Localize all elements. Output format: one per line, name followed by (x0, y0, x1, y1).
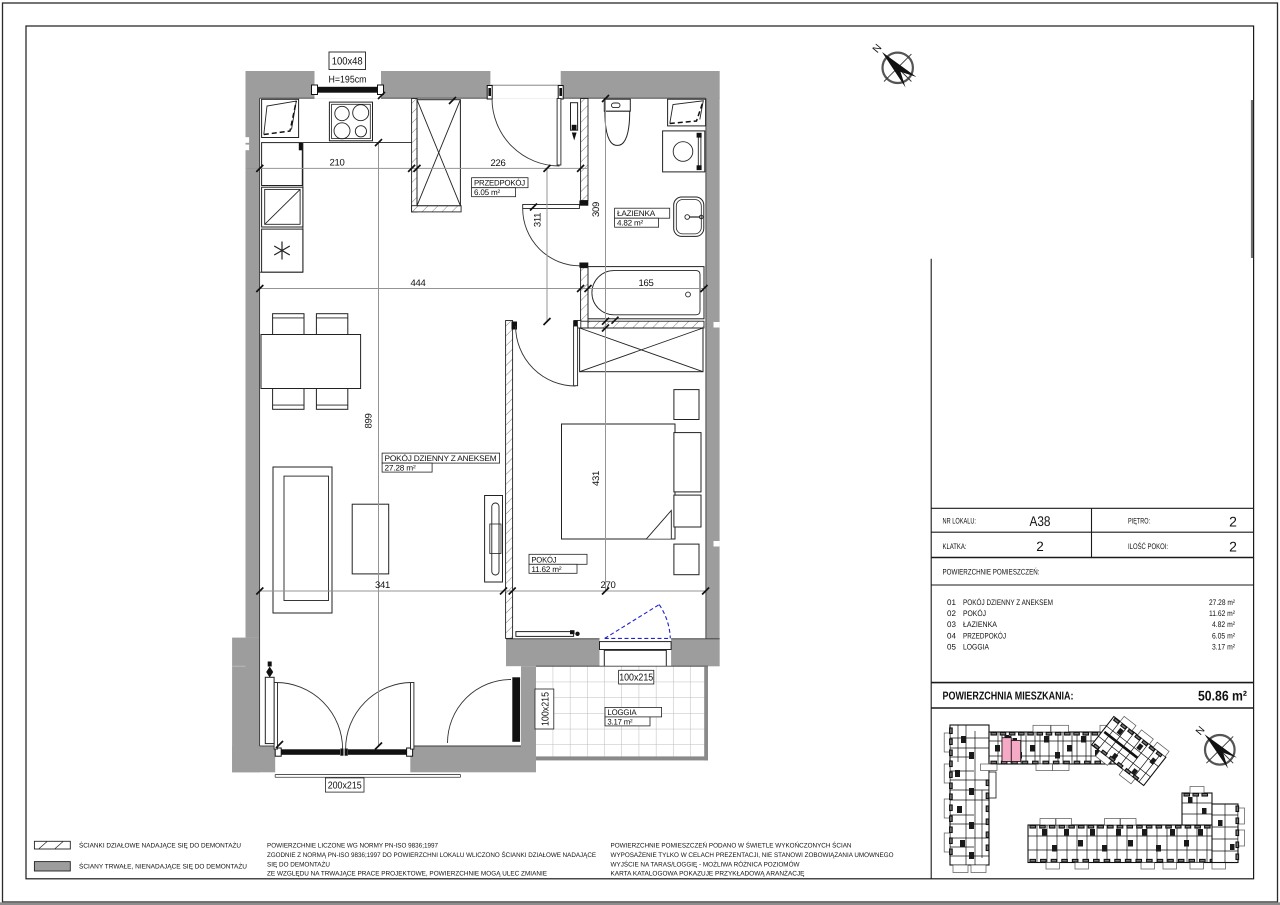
svg-text:WYJŚCIE NA TARAS/LOGGIĘ - MOŻL: WYJŚCIE NA TARAS/LOGGIĘ - MOŻLIWA RÓŻNIC… (611, 860, 801, 868)
svg-text:27.28 m²: 27.28 m² (1209, 598, 1235, 607)
svg-text:A38: A38 (1030, 513, 1051, 529)
svg-text:100x215: 100x215 (619, 673, 653, 684)
svg-text:6.05 m²: 6.05 m² (1212, 631, 1235, 640)
svg-text:431: 431 (591, 471, 602, 486)
svg-text:270: 270 (601, 580, 616, 591)
svg-text:27.28 m²: 27.28 m² (385, 464, 417, 473)
svg-text:ILOŚĆ POKOI:: ILOŚĆ POKOI: (1128, 541, 1168, 551)
svg-text:4.82 m²: 4.82 m² (617, 219, 644, 228)
svg-text:01: 01 (947, 598, 956, 607)
svg-text:2: 2 (1229, 539, 1237, 555)
svg-text:03: 03 (947, 620, 956, 629)
svg-text:ŚCIANY TRWAŁE, NIENADAJĄCE SIĘ: ŚCIANY TRWAŁE, NIENADAJĄCE SIĘ DO DEMONT… (79, 863, 247, 871)
svg-text:309: 309 (591, 202, 602, 217)
svg-text:899: 899 (364, 414, 375, 429)
svg-text:341: 341 (375, 580, 390, 591)
svg-text:ŚCIANKI DZIAŁOWE NADAJĄCE SIĘ: ŚCIANKI DZIAŁOWE NADAJĄCE SIĘ DO DEMONTA… (79, 842, 241, 850)
svg-text:3.17 m²: 3.17 m² (1212, 642, 1235, 651)
svg-text:226: 226 (491, 158, 506, 169)
svg-text:H=195cm: H=195cm (329, 75, 367, 86)
svg-text:KLATKA:: KLATKA: (943, 542, 967, 551)
svg-text:02: 02 (947, 609, 956, 618)
svg-text:ZGODNIE Z NORMĄ PN-ISO 9836;19: ZGODNIE Z NORMĄ PN-ISO 9836;1997 DO POWI… (267, 851, 597, 859)
svg-text:11.62 m²: 11.62 m² (531, 565, 562, 574)
svg-text:444: 444 (411, 278, 426, 289)
svg-text:100x48: 100x48 (332, 56, 363, 68)
svg-text:210: 210 (330, 157, 345, 168)
svg-text:165: 165 (639, 278, 654, 289)
svg-text:LOGGIA: LOGGIA (607, 708, 637, 717)
svg-text:311: 311 (533, 213, 544, 227)
svg-text:2: 2 (1229, 514, 1237, 530)
svg-text:2: 2 (1036, 539, 1044, 554)
svg-text:KARTA KATALOGOWA POKAZUJE PRZY: KARTA KATALOGOWA POKAZUJE PRZYKŁADOWĄ AR… (611, 869, 806, 877)
svg-text:200x215: 200x215 (328, 781, 362, 792)
svg-text:ZE WZGLĘDU NA TRWAJĄCE PRACE P: ZE WZGLĘDU NA TRWAJĄCE PRACE PROJEKTOWE,… (267, 870, 548, 877)
svg-text:05: 05 (947, 642, 956, 651)
svg-text:4.82 m²: 4.82 m² (1212, 620, 1235, 629)
svg-text:ŁAZIENKA: ŁAZIENKA (963, 620, 998, 629)
svg-text:PRZEDPOKÓJ: PRZEDPOKÓJ (963, 631, 1006, 640)
svg-text:NR LOKALU:: NR LOKALU: (943, 517, 977, 526)
svg-text:LOGGIA: LOGGIA (963, 642, 990, 651)
svg-text:POWIERZCHNIE POMIESZCZEŃ:: POWIERZCHNIE POMIESZCZEŃ: (943, 568, 1040, 577)
svg-text:POKÓJ: POKÓJ (963, 609, 986, 618)
svg-text:11.62 m²: 11.62 m² (1209, 609, 1235, 618)
svg-text:ŁAZIENKA: ŁAZIENKA (617, 209, 656, 218)
svg-text:3.17 m²: 3.17 m² (607, 717, 633, 726)
svg-text:POKÓJ DZIENNY Z ANEKSEM: POKÓJ DZIENNY Z ANEKSEM (963, 598, 1053, 607)
svg-text:6.05 m²: 6.05 m² (474, 188, 501, 197)
svg-text:POKÓJ DZIENNY Z ANEKSEM: POKÓJ DZIENNY Z ANEKSEM (385, 454, 498, 463)
svg-text:POWIERZCHNIE POMIESZCZEŃ PODAN: POWIERZCHNIE POMIESZCZEŃ PODANO W ŚWIETL… (611, 841, 852, 849)
svg-text:100x215: 100x215 (540, 692, 551, 726)
svg-text:POWIERZCHNIE LICZONE WG NORMY: POWIERZCHNIE LICZONE WG NORMY PN-ISO 983… (267, 842, 438, 849)
svg-text:SIĘ DO DEMONTAŻU: SIĘ DO DEMONTAŻU (267, 860, 330, 868)
svg-text:50.86 m²: 50.86 m² (1198, 688, 1247, 704)
svg-text:POKÓJ: POKÓJ (531, 555, 556, 564)
svg-text:PIĘTRO:: PIĘTRO: (1128, 517, 1150, 526)
svg-text:04: 04 (947, 631, 956, 640)
svg-text:WYPOSAŻENIE TYLKO W CELACH PRE: WYPOSAŻENIE TYLKO W CELACH PREZENTACJI, … (611, 851, 894, 859)
svg-text:PRZEDPOKÓJ: PRZEDPOKÓJ (474, 179, 525, 188)
svg-text:POWIERZCHNIA MIESZKANIA:: POWIERZCHNIA MIESZKANIA: (943, 691, 1074, 703)
